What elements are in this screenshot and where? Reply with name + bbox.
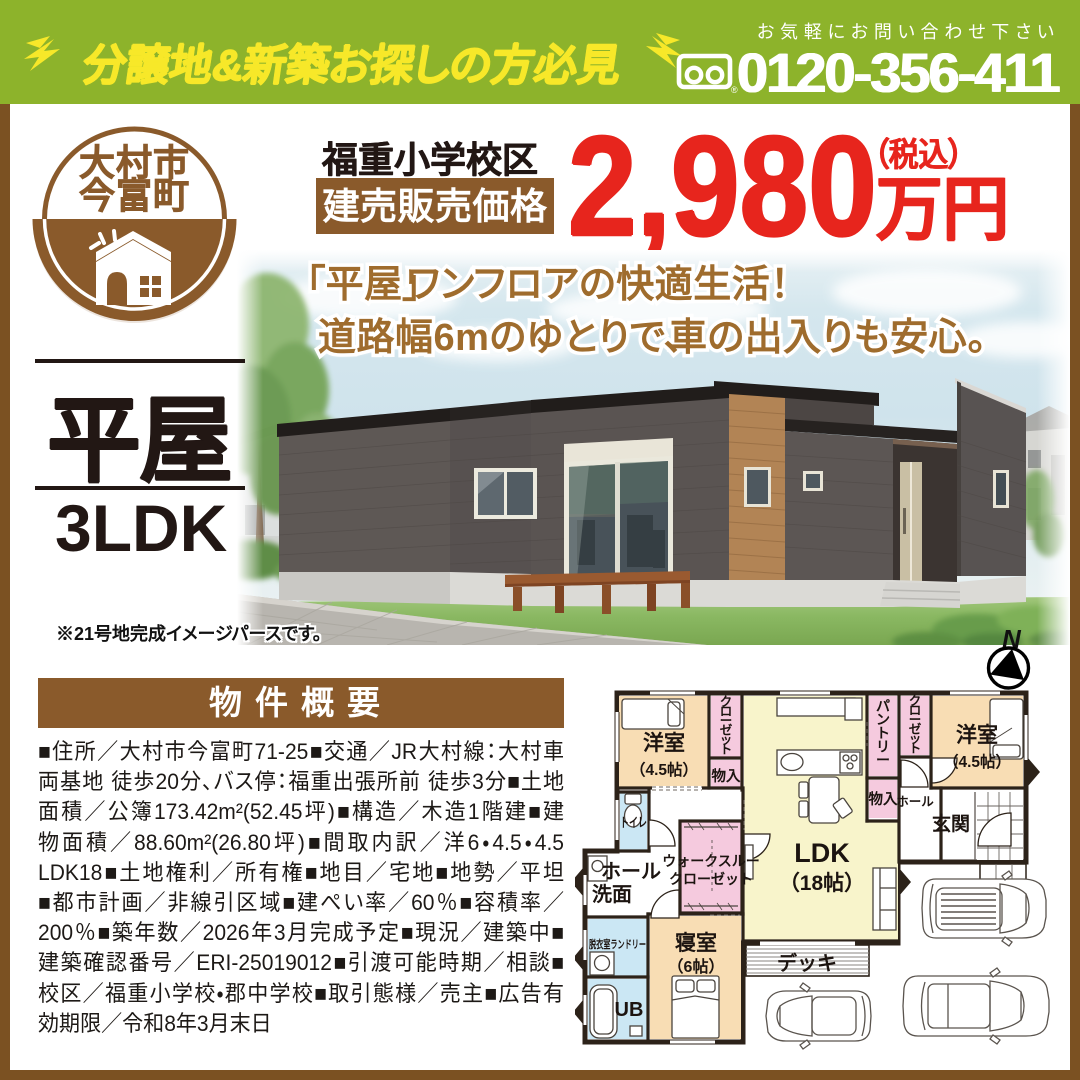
svg-text:ホール: ホール: [601, 861, 661, 883]
svg-text:（4.5帖）: （4.5帖）: [943, 752, 1011, 771]
svg-text:トイレ: トイレ: [620, 815, 647, 830]
svg-text:クローゼット: クローゼット: [669, 871, 753, 887]
svg-text:洋室: 洋室: [643, 731, 685, 755]
svg-text:物入: 物入: [712, 767, 741, 785]
svg-text:（18帖）: （18帖）: [779, 871, 865, 895]
svg-text:物入: 物入: [869, 790, 898, 808]
svg-text:ホール: ホール: [896, 795, 934, 809]
svg-text:洗面: 洗面: [592, 883, 632, 906]
svg-text:今富町: 今富町: [79, 175, 190, 216]
svg-text:洋室: 洋室: [956, 723, 998, 747]
svg-text:（6帖）: （6帖）: [668, 957, 725, 976]
svg-text:脱衣室ランドリー: 脱衣室ランドリー: [589, 937, 646, 951]
svg-text:クローゼット: クローゼット: [720, 695, 733, 757]
svg-text:UB: UB: [615, 999, 644, 1021]
svg-text:ウォークスルー: ウォークスルー: [662, 853, 760, 869]
svg-text:パントリー: パントリー: [876, 698, 890, 768]
svg-text:クローゼット: クローゼット: [909, 694, 922, 756]
svg-text:デッキ: デッキ: [777, 951, 837, 975]
svg-text:寝室: 寝室: [675, 931, 717, 955]
svg-text:（4.5帖）: （4.5帖）: [630, 760, 698, 779]
svg-text:LDK: LDK: [794, 838, 850, 868]
svg-text:玄関: 玄関: [932, 812, 970, 835]
